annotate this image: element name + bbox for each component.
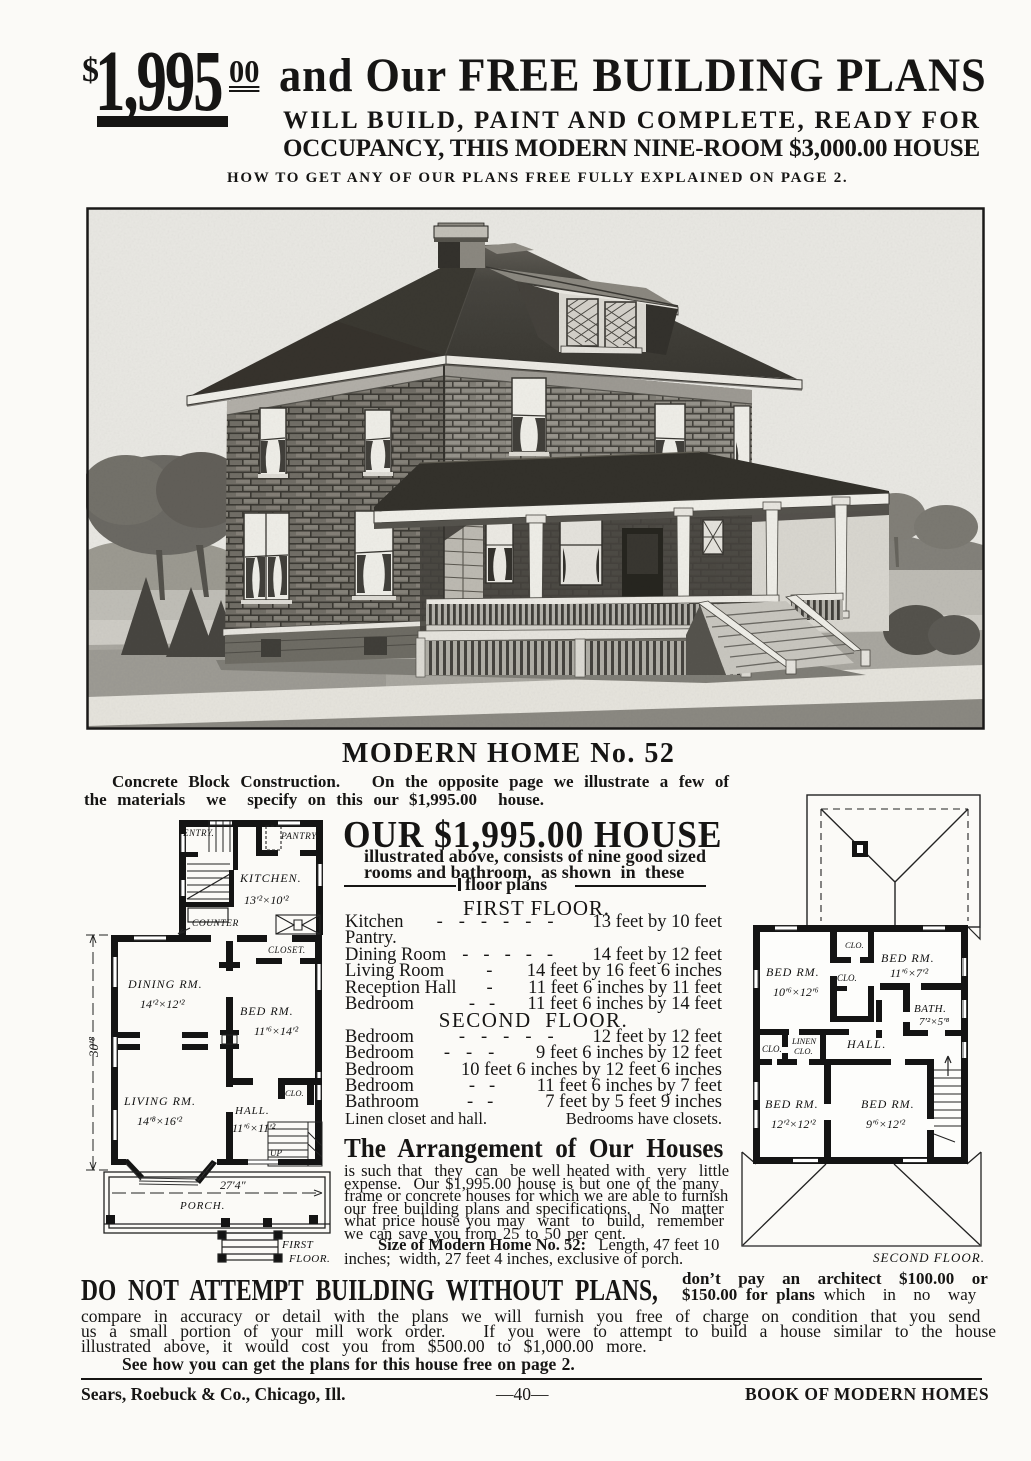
svg-text:HALL.: HALL. xyxy=(846,1037,887,1051)
svg-text:7′²×5′⁸: 7′²×5′⁸ xyxy=(919,1016,950,1028)
svg-text:CLO.: CLO. xyxy=(285,1088,304,1098)
svg-text:PANTRY.: PANTRY. xyxy=(280,832,319,842)
svg-text:9′⁶×12′²: 9′⁶×12′² xyxy=(866,1117,906,1131)
svg-text:SECOND FLOOR.: SECOND FLOOR. xyxy=(873,1250,985,1265)
svg-text:BED RM.: BED RM. xyxy=(240,1004,294,1018)
svg-text:HALL.: HALL. xyxy=(234,1105,270,1117)
svg-text:BED RM.: BED RM. xyxy=(881,951,935,965)
svg-text:27′4″: 27′4″ xyxy=(220,1178,247,1192)
svg-text:10′⁶×12′⁶: 10′⁶×12′⁶ xyxy=(773,985,819,999)
svg-text:FIRST: FIRST xyxy=(281,1239,314,1251)
svg-text:14′⁸×16′²: 14′⁸×16′² xyxy=(137,1114,183,1128)
svg-text:BED RM.: BED RM. xyxy=(765,1097,819,1111)
svg-text:14′²×12′²: 14′²×12′² xyxy=(140,997,185,1011)
svg-text:UP: UP xyxy=(270,1148,282,1158)
svg-text:CLO.: CLO. xyxy=(794,1046,813,1056)
svg-text:12′²×12′²: 12′²×12′² xyxy=(771,1117,816,1131)
svg-text:13′²×10′²: 13′²×10′² xyxy=(244,893,289,907)
svg-text:LINEN: LINEN xyxy=(791,1036,817,1046)
svg-text:30′⁸: 30′⁸ xyxy=(86,1036,101,1058)
svg-text:CLOSET.: CLOSET. xyxy=(268,945,306,955)
svg-text:PORCH.: PORCH. xyxy=(179,1200,225,1212)
svg-text:DINING RM.: DINING RM. xyxy=(127,977,203,991)
svg-text:BED RM.: BED RM. xyxy=(766,965,820,979)
svg-text:COUNTER: COUNTER xyxy=(192,919,239,929)
svg-text:LIVING RM.: LIVING RM. xyxy=(123,1094,196,1108)
svg-text:CLO.: CLO. xyxy=(845,940,864,950)
svg-text:CLO.: CLO. xyxy=(762,1044,782,1054)
svg-text:11′⁶×14′²: 11′⁶×14′² xyxy=(254,1024,299,1038)
svg-text:11′⁶×7′²: 11′⁶×7′² xyxy=(890,966,929,980)
svg-text:11′⁶×11′²: 11′⁶×11′² xyxy=(232,1121,276,1135)
svg-text:FLOOR.: FLOOR. xyxy=(288,1253,330,1265)
svg-text:BATH.: BATH. xyxy=(914,1003,946,1015)
svg-text:BED RM.: BED RM. xyxy=(861,1097,915,1111)
svg-text:CLO.: CLO. xyxy=(837,973,857,983)
svg-text:KITCHEN.: KITCHEN. xyxy=(239,871,302,885)
